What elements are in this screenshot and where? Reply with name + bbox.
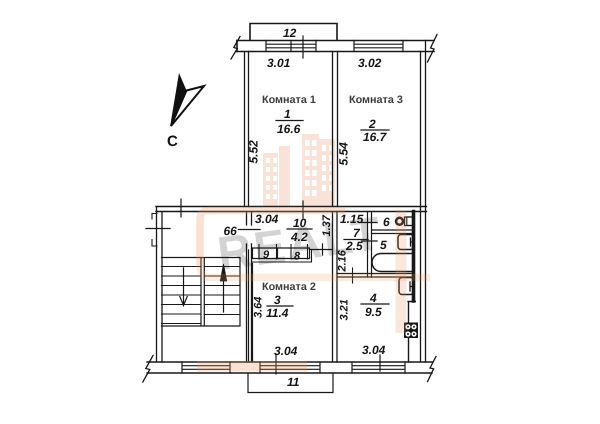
svg-text:3.64: 3.64 (253, 297, 265, 318)
svg-text:4: 4 (369, 291, 377, 305)
svg-text:9.5: 9.5 (365, 305, 382, 319)
svg-text:3.04: 3.04 (362, 343, 386, 357)
svg-text:1: 1 (284, 107, 291, 121)
svg-text:8: 8 (294, 251, 301, 263)
svg-text:66: 66 (224, 224, 238, 238)
svg-text:12: 12 (283, 26, 297, 40)
svg-text:Комната 3: Комната 3 (349, 94, 403, 106)
svg-text:Комната 2: Комната 2 (262, 281, 316, 293)
svg-text:3.21: 3.21 (339, 299, 351, 320)
svg-text:11.4: 11.4 (266, 306, 289, 320)
svg-text:1.37: 1.37 (321, 214, 333, 236)
svg-text:9: 9 (263, 249, 270, 261)
svg-text:5: 5 (380, 238, 387, 252)
svg-text:16.6: 16.6 (277, 122, 301, 136)
svg-text:4.2: 4.2 (290, 230, 308, 244)
svg-text:3.02: 3.02 (358, 56, 382, 70)
svg-text:Комната 1: Комната 1 (262, 94, 316, 106)
svg-text:10: 10 (293, 216, 307, 230)
svg-text:2.16: 2.16 (337, 249, 349, 272)
svg-text:6: 6 (383, 215, 390, 229)
svg-text:С: С (167, 133, 178, 150)
svg-text:5.52: 5.52 (247, 140, 261, 164)
svg-text:2: 2 (368, 117, 376, 131)
svg-text:3: 3 (274, 293, 281, 307)
svg-text:11: 11 (287, 375, 300, 389)
svg-text:3.04: 3.04 (274, 344, 298, 358)
svg-text:3.01: 3.01 (267, 56, 291, 70)
svg-text:5.54: 5.54 (337, 142, 351, 166)
svg-text:16.7: 16.7 (363, 130, 388, 144)
